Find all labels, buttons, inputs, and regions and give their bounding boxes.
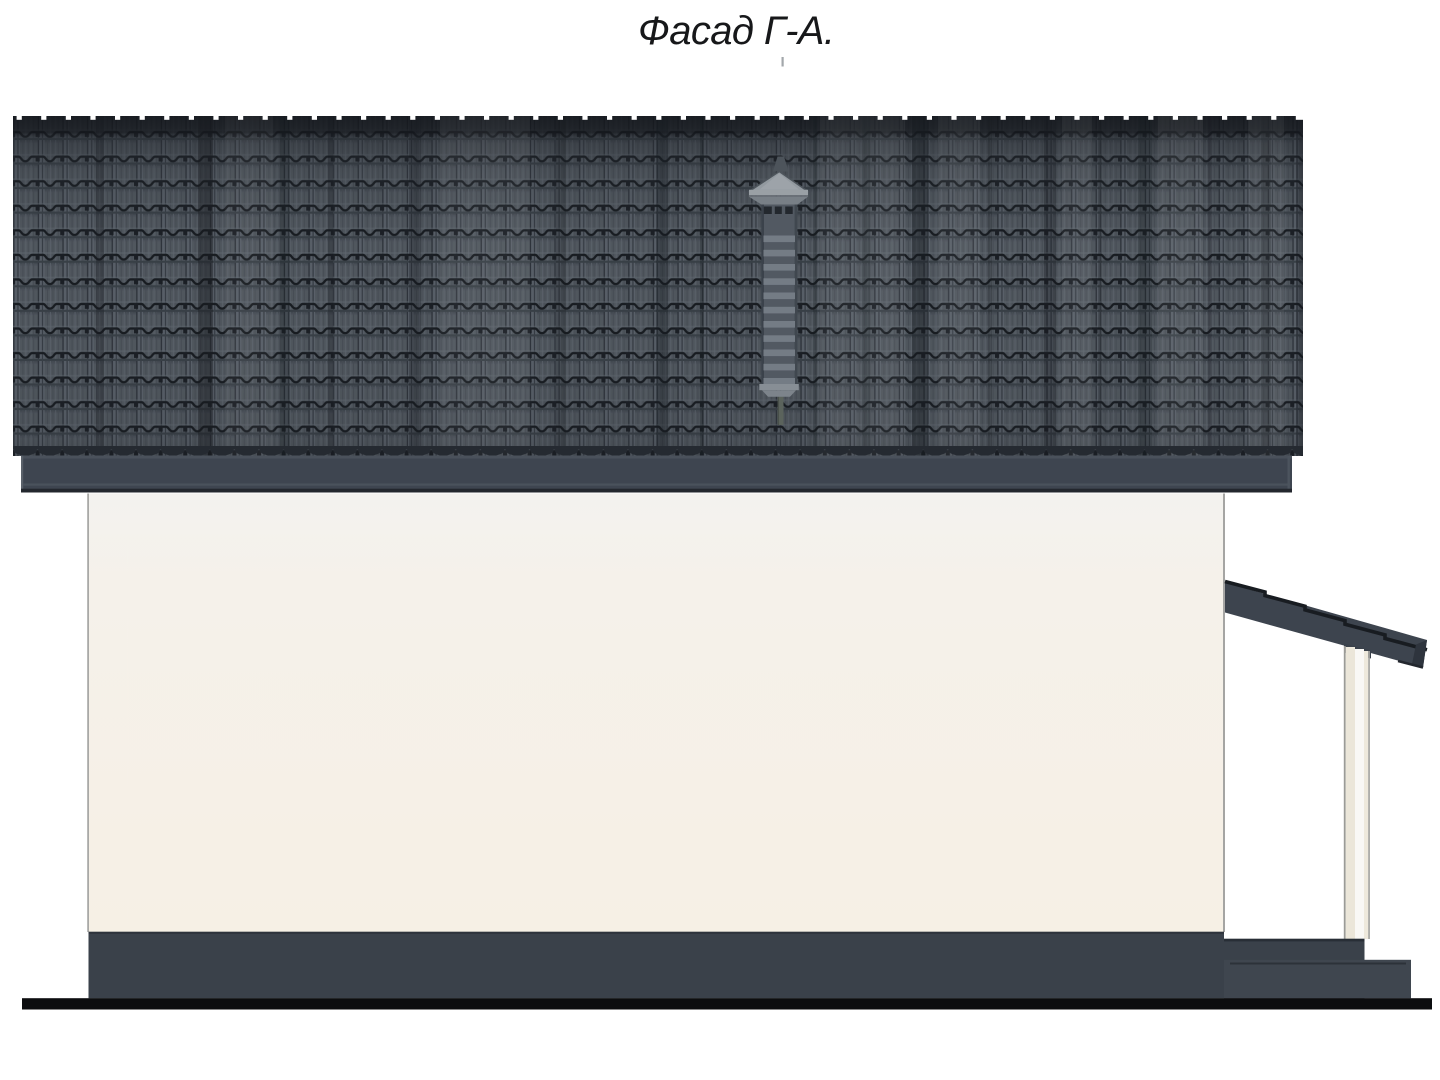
svg-text:Фасад Г-А.: Фасад Г-А.	[638, 9, 834, 53]
